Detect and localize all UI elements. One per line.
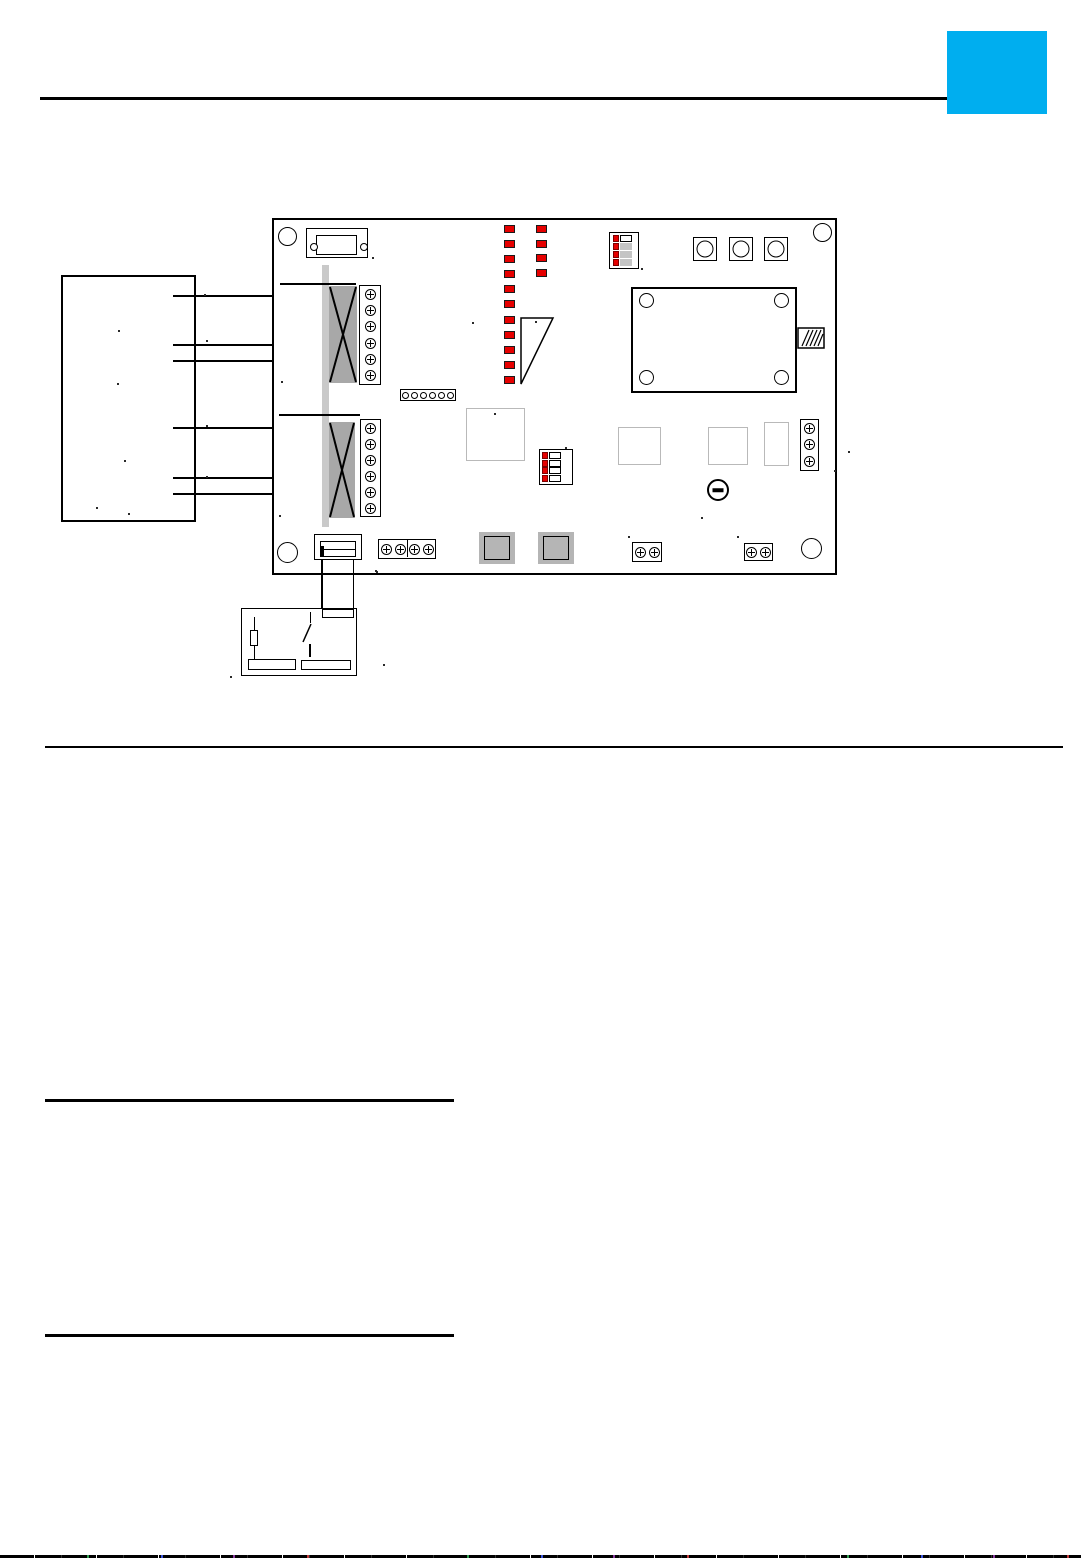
text-remnant-dot [472, 322, 474, 324]
text-remnant-dot [494, 413, 496, 415]
text-remnant-dot [701, 517, 703, 519]
text-remnant-dot [535, 321, 537, 323]
text-remnant-dot [96, 507, 98, 509]
text-remnant-dot [848, 451, 850, 453]
text-remnant-dot [204, 294, 206, 296]
text-remnant-dot [565, 447, 567, 449]
specks-layer [0, 0, 1081, 1561]
text-remnant-dot [118, 330, 120, 332]
text-remnant-dot [372, 257, 374, 259]
text-remnant-dot [230, 676, 232, 678]
document-page [0, 0, 1081, 1561]
text-remnant-dot [128, 513, 130, 515]
text-remnant-dot [641, 268, 643, 270]
text-remnant-dot [628, 536, 630, 538]
text-remnant-dot [117, 383, 119, 385]
text-remnant-dot [737, 536, 739, 538]
pcb-wiring-diagram [0, 0, 1081, 1561]
text-remnant-dot [206, 425, 208, 427]
text-remnant-dot [279, 515, 281, 517]
text-remnant-dot [206, 476, 208, 478]
text-remnant-dot [281, 381, 283, 383]
text-remnant-dot [383, 664, 385, 666]
text-remnant-dot [124, 460, 126, 462]
text-remnant-dot [834, 470, 836, 472]
text-remnant-dot [206, 340, 208, 342]
text-remnant-dot [376, 571, 378, 573]
